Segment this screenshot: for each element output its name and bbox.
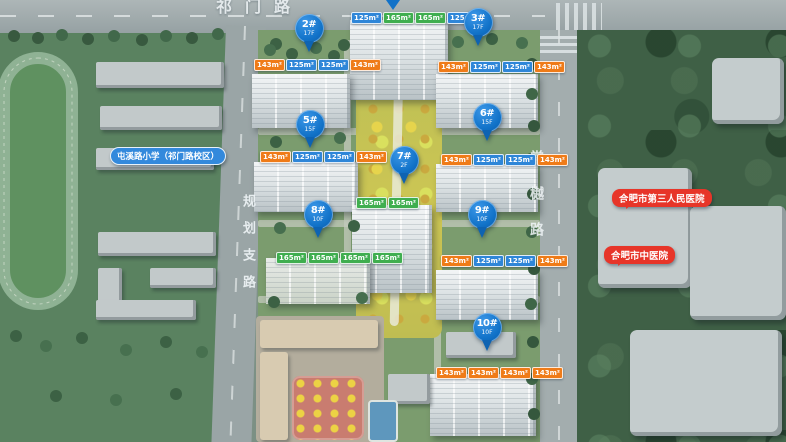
unit-area-tag: 165m² (276, 252, 307, 264)
trees-bottom-left (10, 330, 22, 342)
unit-area-tag: 125m² (292, 151, 323, 163)
tower-10 (430, 374, 536, 436)
tree-row-top (8, 30, 20, 42)
unit-tags-building-10: 143m² 143m² 143m² 143m² (436, 367, 563, 379)
pin-head: 7# 2F (390, 146, 419, 175)
building-number: 6# (480, 109, 494, 119)
unit-area-tag: 143m² (350, 59, 381, 71)
unit-area-tag: 125m² (473, 255, 504, 267)
building-number: 7# (397, 152, 411, 162)
pin-head: 8# 10F (304, 200, 333, 229)
poi-label-hospital-tcm[interactable]: 合肥市中医院 (604, 246, 675, 264)
building-number: 2# (302, 20, 316, 30)
unit-area-tag: 143m² (537, 154, 568, 166)
pin-tail (482, 130, 492, 141)
hospital-building (690, 206, 786, 320)
kindergarten-courtyard (292, 376, 364, 440)
unit-area-tag: 125m² (473, 154, 504, 166)
unit-area-tag: 143m² (532, 367, 563, 379)
unit-tags-building-8: 165m² 165m² 165m² 165m² (276, 252, 403, 264)
unit-area-tag: 143m² (441, 255, 472, 267)
poi-label-hospital-third-peoples[interactable]: 合肥市第三人民医院 (612, 189, 712, 207)
building-pin-1-partial[interactable] (386, 0, 400, 10)
poi-label-school[interactable]: 屯溪路小学（祁门路校区） (110, 147, 226, 165)
building-pin-7[interactable]: 7# 2F (389, 146, 419, 184)
compound-trees (264, 44, 276, 56)
building-floors: 15F (481, 120, 492, 126)
building-pin-6[interactable]: 6# 15F (472, 103, 502, 141)
pin-tail (482, 340, 492, 351)
pin-head: 10# 10F (473, 313, 502, 342)
building-pin-9[interactable]: 9# 10F (467, 200, 497, 238)
building-floors: 17F (472, 25, 483, 31)
unit-area-tag: 143m² (500, 367, 531, 379)
school-building (100, 106, 222, 130)
unit-tags-building-2: 143m² 125m² 125m² 143m² (254, 59, 381, 71)
school-building (98, 232, 216, 256)
pin-tail (473, 35, 483, 46)
building-pin-8[interactable]: 8# 10F (303, 200, 333, 238)
unit-area-tag: 165m² (415, 12, 446, 24)
road-label-top: 祁门路 (216, 0, 303, 17)
pin-tail (313, 227, 323, 238)
pool (368, 400, 398, 442)
unit-tags-building-3: 143m² 125m² 125m² 143m² (438, 61, 565, 73)
unit-area-tag: 143m² (468, 367, 499, 379)
unit-area-tag: 125m² (502, 61, 533, 73)
building-floors: 15F (304, 127, 315, 133)
unit-area-tag: 125m² (470, 61, 501, 73)
right-road-lane-marks (558, 30, 560, 442)
unit-area-tag: 143m² (260, 151, 291, 163)
site-plan-map: 祁门路 规划支路 棠樾路 2# 17F 3# 17F 5# 15F 6# 15F… (0, 0, 786, 442)
building-pin-5[interactable]: 5# 15F (295, 110, 325, 148)
building-pin-10[interactable]: 10# 10F (472, 313, 502, 351)
building-pin-3[interactable]: 3# 17F (463, 8, 493, 46)
pin-head: 6# 15F (473, 103, 502, 132)
unit-area-tag: 125m² (505, 255, 536, 267)
building-pin-2[interactable]: 2# 17F (294, 14, 324, 52)
unit-area-tag: 165m² (308, 252, 339, 264)
unit-tags-building-5: 143m² 125m² 125m² 143m² (260, 151, 387, 163)
pin-tail (399, 173, 409, 184)
building-floors: 17F (303, 31, 314, 37)
building-floors: 10F (312, 217, 323, 223)
building-number: 8# (311, 206, 325, 216)
unit-area-tag: 165m² (372, 252, 403, 264)
pin-head: 3# 17F (464, 8, 493, 37)
unit-tags-building-7: 165m² 165m² (356, 197, 419, 209)
crosswalk-right (540, 36, 577, 54)
road-label-left: 规划支路 (238, 194, 257, 302)
school-building (96, 300, 196, 320)
unit-area-tag: 143m² (534, 61, 565, 73)
building-floors: 2F (400, 163, 407, 169)
unit-area-tag: 143m² (436, 367, 467, 379)
hospital-building (712, 58, 784, 124)
unit-area-tag: 143m² (356, 151, 387, 163)
amenity-building (260, 352, 288, 440)
unit-area-tag: 125m² (286, 59, 317, 71)
pin-head: 5# 15F (296, 110, 325, 139)
running-track (0, 44, 96, 320)
road-label-right: 棠樾路 (526, 150, 546, 258)
pin-head: 2# 17F (295, 14, 324, 43)
building-number: 5# (303, 116, 317, 126)
unit-tags-building-9: 143m² 125m² 125m² 143m² (441, 255, 568, 267)
unit-area-tag: 165m² (340, 252, 371, 264)
pin-tail (304, 41, 314, 52)
tower-8 (266, 258, 370, 304)
pin-head: 9# 10F (468, 200, 497, 229)
building-floors: 10F (481, 330, 492, 336)
unit-area-tag: 125m² (324, 151, 355, 163)
unit-area-tag: 143m² (537, 255, 568, 267)
building-number: 3# (471, 14, 485, 24)
unit-tags-building-1: 125m² 165m² 165m² 125m² (351, 12, 478, 24)
crosswalk-top (556, 3, 602, 30)
amenity-building (260, 320, 378, 348)
unit-area-tag: 143m² (254, 59, 285, 71)
school-building (150, 268, 216, 288)
unit-area-tag: 165m² (383, 12, 414, 24)
building-number: 9# (475, 206, 489, 216)
building-floors: 10F (476, 217, 487, 223)
unit-area-tag: 143m² (441, 154, 472, 166)
hospital-building (630, 330, 782, 436)
pin-tail (305, 137, 315, 148)
school-building (96, 62, 224, 88)
unit-area-tag: 125m² (351, 12, 382, 24)
unit-area-tag: 125m² (318, 59, 349, 71)
unit-area-tag: 165m² (388, 197, 419, 209)
unit-area-tag: 165m² (356, 197, 387, 209)
unit-area-tag: 125m² (505, 154, 536, 166)
unit-tags-building-6: 143m² 125m² 125m² 143m² (441, 154, 568, 166)
unit-area-tag: 143m² (438, 61, 469, 73)
pin-tail (477, 227, 487, 238)
building-number: 10# (477, 319, 498, 329)
